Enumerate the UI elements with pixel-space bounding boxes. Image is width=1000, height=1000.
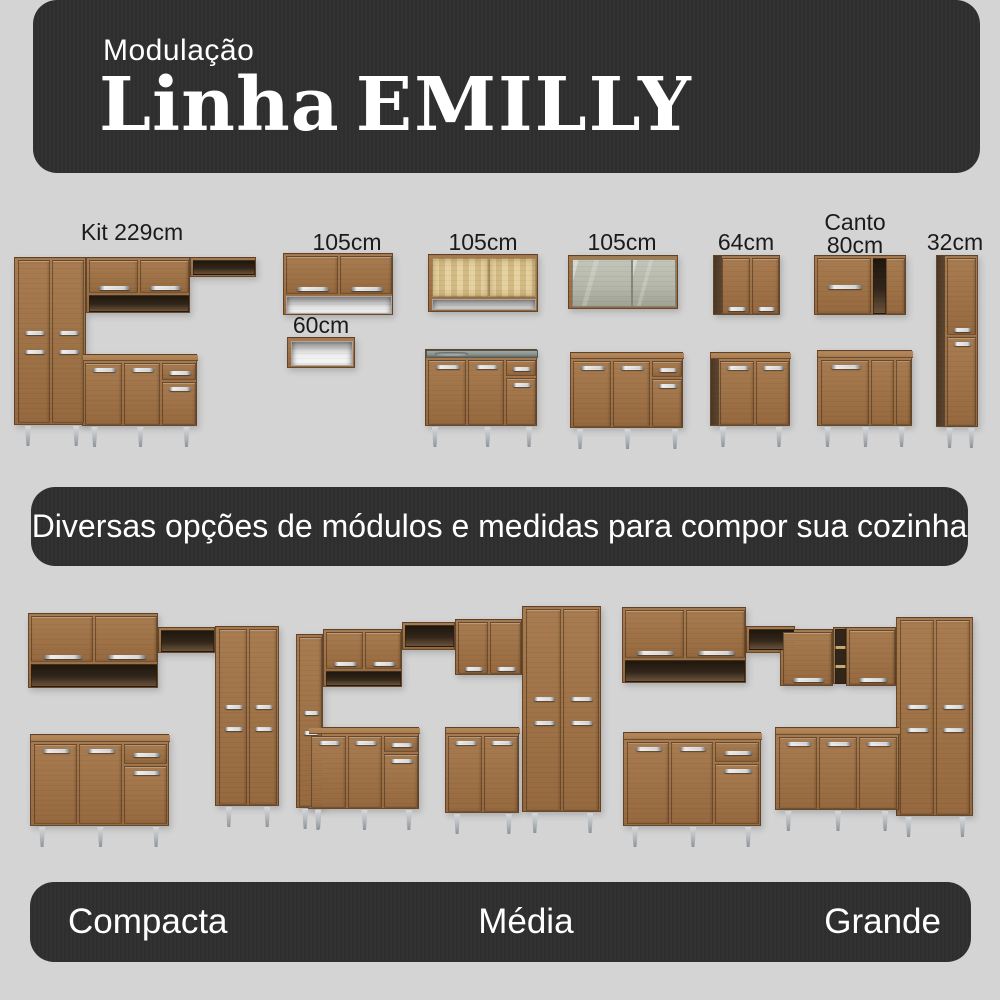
cabinet-leg: [137, 427, 145, 447]
cabinet-shelves: [835, 629, 846, 684]
cabinet-leg: [905, 817, 913, 837]
cabinet-paneltop: [446, 728, 520, 734]
cabinet-door: [162, 382, 196, 425]
media-base-cabinet-right: [445, 727, 519, 813]
cabinet-drawer: [715, 742, 759, 762]
cabinet-door: [779, 737, 817, 809]
cabinet-door: [458, 622, 488, 674]
cabinet-door: [817, 258, 871, 314]
cabinet-door: [947, 258, 976, 335]
cabinet-paneltop: [571, 353, 684, 359]
cabinet-door: [563, 609, 599, 811]
cabinet-leg: [898, 427, 906, 447]
cabinet-door: [671, 742, 713, 824]
cabinet-door: [947, 337, 976, 426]
cabinet-door: [859, 737, 897, 809]
cabinet-leg: [946, 428, 954, 448]
cabinet-paneltop: [818, 351, 913, 358]
compacta-base-cabinet: [30, 734, 169, 826]
cabinet-drawer: [162, 363, 196, 380]
cabinet-leg: [24, 426, 32, 446]
upper-cabinet-105-glass: [568, 255, 678, 309]
cabinet-leg: [152, 827, 160, 847]
cabinet-drawer: [652, 361, 682, 377]
cabinet-open: [89, 295, 189, 312]
cabinet-leg: [301, 809, 309, 829]
footer-banner: Compacta Média Grande: [30, 882, 971, 962]
cabinet-leg: [576, 429, 584, 449]
cabinet-drawer: [506, 360, 536, 376]
kit-tall-cabinet: [14, 257, 86, 425]
cabinet-leg: [784, 811, 792, 831]
cabinet-leg: [624, 429, 632, 449]
media-tall-cabinet: [522, 606, 601, 812]
cabinet-paneltop: [83, 355, 198, 361]
cabinet-door: [365, 632, 401, 669]
cabinet-door: [715, 764, 759, 824]
cabinet-glass: [572, 259, 632, 307]
cabinet-door: [326, 632, 363, 669]
grande-tall-cabinet: [896, 617, 973, 816]
cabinet-door: [249, 629, 277, 805]
cabinet-door: [752, 258, 779, 314]
upper-cabinet-105-shelf: [283, 253, 393, 315]
cabinet-side-panel: [711, 353, 719, 425]
cabinet-open: [193, 260, 255, 275]
cabinet-sink: [426, 350, 538, 358]
cabinet-door: [490, 622, 521, 674]
cabinet-leg: [744, 827, 752, 847]
cabinet-door: [484, 736, 518, 812]
cabinet-door: [686, 610, 745, 658]
cabinet-door: [849, 630, 895, 685]
kitchen-size-label-grande: Grande: [824, 902, 941, 942]
media-upper-cabinet-left: [323, 629, 402, 687]
cabinet-door: [428, 360, 466, 425]
cabinet-door: [124, 363, 160, 425]
cabinet-leg: [958, 817, 966, 837]
cabinet-door: [625, 610, 684, 658]
sink-basin: [435, 352, 468, 355]
cabinet-door: [936, 620, 970, 815]
base-cabinet-64: [710, 352, 790, 426]
cabinet-paneltop: [624, 733, 762, 740]
cabinet-leg: [72, 426, 80, 446]
cabinet-door: [79, 744, 122, 824]
cabinet-leg: [834, 811, 842, 831]
cabinet-paneltop: [31, 735, 170, 742]
cabinet-door: [311, 736, 346, 808]
cabinet-leg: [405, 810, 413, 830]
cabinet-leg: [91, 427, 99, 447]
cabinet-leg: [967, 428, 975, 448]
upper-cabinet-105-wood-glass: [428, 254, 538, 312]
cabinet-door: [95, 616, 157, 662]
cabinet-door: [821, 360, 869, 425]
cabinet-leg: [263, 807, 271, 827]
compacta-bridge-shelf: [158, 627, 215, 653]
cabinet-leg: [631, 827, 639, 847]
size-label: 105cm: [312, 231, 381, 254]
cabinet-door: [124, 766, 167, 824]
cabinet-leg: [97, 827, 105, 847]
cabinet-leg: [525, 427, 533, 447]
cabinet-pine: [432, 258, 489, 297]
cabinet-leg: [431, 427, 439, 447]
cabinet-leg: [183, 427, 191, 447]
cabinet-door: [85, 363, 122, 425]
cabinet-door: [140, 260, 189, 293]
cabinet-leg: [775, 427, 783, 447]
cabinet-leg: [225, 807, 233, 827]
grande-upper-cabinet-left: [622, 607, 746, 683]
cabinet-paneltop: [711, 353, 791, 359]
grande-base-cabinet-left: [623, 732, 761, 826]
compacta-upper-cabinet: [28, 613, 158, 688]
cabinet-side-panel: [714, 256, 722, 314]
cabinet-door: [722, 258, 750, 314]
cabinet-leg: [505, 814, 513, 834]
base-cabinet-105: [570, 352, 683, 428]
cabinet-leg: [862, 427, 870, 447]
cabinet-door: [573, 361, 611, 427]
cabinet-door: [756, 361, 789, 425]
cabinet-door: [900, 620, 934, 815]
cabinet-leg: [689, 827, 697, 847]
cabinet-paneltop: [309, 728, 420, 734]
kit-top-shelf: [190, 257, 256, 277]
kitchen-size-label-media: Média: [478, 902, 573, 942]
cabinet-door: [34, 744, 77, 824]
cabinet-open: [291, 341, 353, 366]
cabinet-leg: [361, 810, 369, 830]
cabinet-open: [432, 299, 536, 310]
cabinet-glass: [632, 259, 676, 307]
cabinet-door: [89, 260, 138, 293]
tall-cabinet-32: [936, 255, 978, 427]
cabinet-leg: [531, 813, 539, 833]
cabinet-door: [783, 632, 832, 685]
grande-upper-cabinet-mid: [780, 629, 833, 686]
size-label: 105cm: [448, 231, 517, 254]
cabinet-open: [873, 258, 886, 314]
cabinet-leg: [824, 427, 832, 447]
cabinet-open: [31, 664, 157, 687]
grande-corner-shelves: [833, 627, 846, 684]
cabinet-door: [348, 736, 382, 808]
cabinet-door: [468, 360, 504, 425]
size-label: 105cm: [587, 231, 656, 254]
size-label: Kit 229cm: [81, 221, 183, 244]
cabinet-door: [219, 629, 247, 805]
size-label: 60cm: [293, 314, 349, 337]
cabinet-drawer: [384, 736, 418, 752]
cabinet-door: [31, 616, 93, 662]
size-label: 64cm: [718, 231, 774, 254]
middle-banner: Diversas opções de módulos e medidas par…: [31, 487, 968, 566]
media-base-cabinet-left: [308, 727, 419, 809]
cabinet-door: [448, 736, 482, 812]
cabinet-open: [326, 671, 401, 686]
kit-upper-cabinet: [86, 257, 190, 313]
cabinet-panel: [886, 258, 905, 314]
cabinet-open: [405, 625, 454, 647]
cabinet-side-panel: [937, 256, 945, 426]
corner-upper-cabinet-80: [814, 255, 906, 315]
cabinet-panel: [896, 360, 911, 425]
media-upper-cabinet-right: [455, 619, 522, 675]
cabinet-door: [286, 256, 338, 294]
cabinet-open: [625, 660, 745, 682]
cabinet-door: [819, 737, 857, 809]
cabinet-leg: [719, 427, 727, 447]
size-label: Canto 80cm: [824, 211, 885, 257]
size-label: 32cm: [927, 231, 983, 254]
cabinet-leg: [586, 813, 594, 833]
cabinet-leg: [484, 427, 492, 447]
corner-base-cabinet-80: [817, 350, 912, 426]
kit-base-cabinet: [82, 354, 197, 426]
cabinet-open: [161, 630, 214, 652]
cabinet-door: [613, 361, 650, 427]
cabinet-door: [627, 742, 669, 824]
cabinet-leg: [38, 827, 46, 847]
cabinet-door: [52, 260, 84, 423]
cabinet-leg: [453, 814, 461, 834]
cabinet-paneltop: [776, 728, 900, 735]
cabinet-door: [720, 361, 754, 425]
cabinet-leg: [881, 811, 889, 831]
cabinet-door: [526, 609, 561, 811]
middle-banner-text: Diversas opções de módulos e medidas par…: [32, 508, 968, 545]
kitchen-size-label-compacta: Compacta: [68, 902, 228, 942]
promo-poster: Modulação LinhaEMILLY Kit 229cm105cm60cm…: [0, 0, 1000, 1000]
cabinet-open: [286, 296, 392, 314]
cabinet-pine: [489, 258, 536, 297]
compacta-tall-cabinet: [215, 626, 279, 806]
cabinet-door: [652, 379, 682, 427]
cabinet-door: [340, 256, 392, 294]
grande-corner-base-cabinet: [775, 727, 899, 810]
wall-niche-60: [287, 337, 355, 368]
upper-cabinet-64: [713, 255, 780, 315]
cabinet-drawer: [124, 744, 167, 764]
cabinet-door: [18, 260, 50, 423]
cabinet-leg: [671, 429, 679, 449]
sink-base-cabinet-105: [425, 349, 537, 426]
grande-upper-cabinet-right: [846, 627, 896, 686]
media-bridge-shelf: [402, 622, 455, 650]
cabinet-door: [871, 360, 894, 425]
cabinet-door: [506, 378, 536, 425]
cabinet-door: [384, 754, 418, 808]
